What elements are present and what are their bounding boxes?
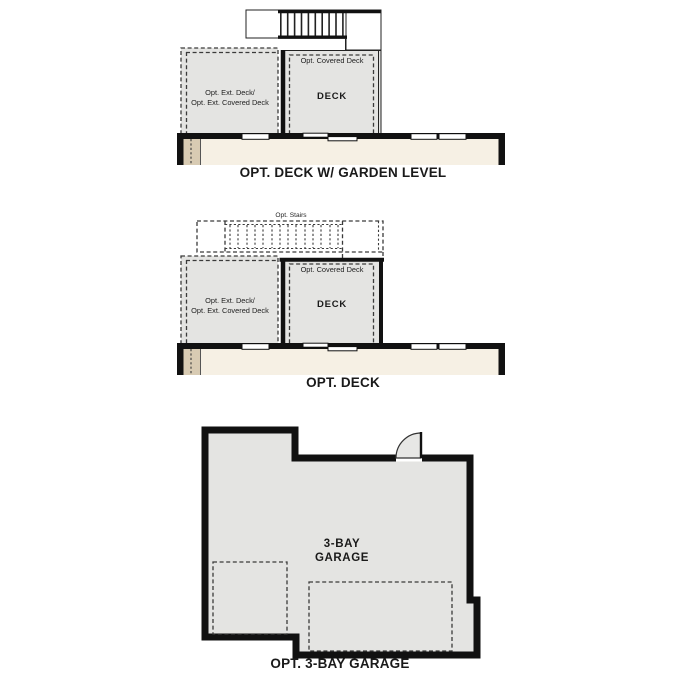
door-swing xyxy=(396,433,421,458)
floorplan-sheet: Opt. Ext. Deck/ Opt. Ext. Covered Deck O… xyxy=(0,0,687,687)
plan-deck-garden-level: Opt. Ext. Deck/ Opt. Ext. Covered Deck O… xyxy=(177,10,505,180)
opt-ext-deck-label-line2: Opt. Ext. Covered Deck xyxy=(191,98,269,107)
opt-ext-deck-area: Opt. Ext. Deck/ Opt. Ext. Covered Deck xyxy=(181,48,278,136)
deck-area: Opt. Covered Deck DECK xyxy=(281,10,381,136)
house-right-wall xyxy=(499,343,506,375)
floorplan-canvas: Opt. Ext. Deck/ Opt. Ext. Covered Deck O… xyxy=(0,0,687,687)
deck-label: DECK xyxy=(317,91,347,102)
window xyxy=(242,134,269,140)
stair-landing xyxy=(246,10,346,38)
deck-label: DECK xyxy=(317,299,347,310)
window xyxy=(439,134,466,140)
plan-title-deck-garden: OPT. DECK W/ GARDEN LEVEL xyxy=(240,165,447,180)
house-left-wall xyxy=(177,343,184,375)
plan-opt-deck: Opt. Stairs xyxy=(177,212,505,390)
deck-area: Opt. Covered Deck DECK xyxy=(280,258,385,345)
opt-ext-deck-label-line2: Opt. Ext. Covered Deck xyxy=(191,306,269,315)
opt-stairs-label: Opt. Stairs xyxy=(275,212,307,219)
sliding-door-panel xyxy=(328,137,357,141)
covered-deck-label: Opt. Covered Deck xyxy=(301,265,364,274)
window xyxy=(411,344,437,350)
opt-ext-deck-label-line1: Opt. Ext. Deck/ xyxy=(205,296,256,305)
chimney-chase xyxy=(184,349,201,375)
sliding-door-panel xyxy=(303,343,328,347)
garage-label-line2: GARAGE xyxy=(315,552,369,564)
chimney-chase xyxy=(184,139,201,165)
house-band xyxy=(177,133,505,165)
opt-stair-treads xyxy=(230,225,338,248)
opt-ext-deck-label-line1: Opt. Ext. Deck/ xyxy=(205,88,256,97)
house-band xyxy=(177,343,505,375)
garage-label-line1: 3-BAY xyxy=(324,538,360,550)
window xyxy=(242,344,269,350)
plan-title-garage: OPT. 3-BAY GARAGE xyxy=(270,656,409,671)
window xyxy=(439,344,466,350)
sliding-door-panel xyxy=(328,347,357,351)
sliding-door-panel xyxy=(303,133,328,137)
covered-deck-label: Opt. Covered Deck xyxy=(301,56,364,65)
opt-stairs: Opt. Stairs xyxy=(197,212,383,258)
stairs xyxy=(246,10,381,50)
house-right-wall xyxy=(499,133,506,165)
opt-ext-deck-area: Opt. Ext. Deck/ Opt. Ext. Covered Deck xyxy=(181,256,278,345)
window xyxy=(411,134,437,140)
plan-title-opt-deck: OPT. DECK xyxy=(306,375,380,390)
plan-garage: 3-BAY GARAGE OPT. 3-BAY GARAGE xyxy=(205,430,477,671)
house-left-wall xyxy=(177,133,184,165)
stair-upper-landing xyxy=(346,10,381,50)
